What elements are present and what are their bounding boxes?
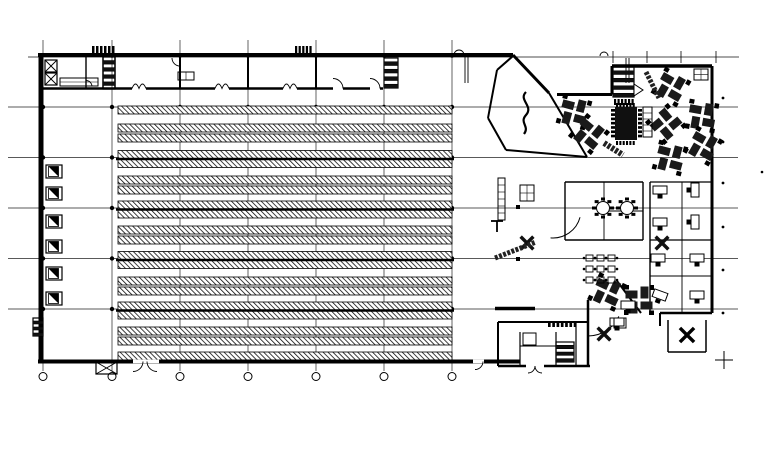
rack-row bbox=[118, 151, 452, 159]
desk bbox=[610, 318, 624, 331]
stair bbox=[103, 57, 115, 89]
stair bbox=[33, 318, 43, 336]
floorplan-window bbox=[0, 0, 774, 453]
angled-table bbox=[495, 242, 536, 258]
chair-row bbox=[638, 109, 642, 137]
chair-row bbox=[92, 46, 114, 53]
rack-row bbox=[118, 311, 452, 319]
desk bbox=[690, 254, 704, 267]
workstation-cluster bbox=[685, 99, 720, 134]
rack-row bbox=[118, 124, 452, 132]
desk bbox=[653, 218, 667, 231]
rack-row bbox=[118, 226, 452, 234]
rack-row bbox=[118, 176, 452, 184]
rack-row bbox=[118, 302, 452, 310]
rack-row bbox=[118, 186, 452, 194]
floor-plan-canvas bbox=[0, 0, 774, 453]
desk bbox=[651, 254, 665, 267]
rack-row bbox=[118, 160, 452, 168]
equipment-box bbox=[45, 60, 57, 72]
rack-row bbox=[118, 210, 452, 218]
desk bbox=[687, 215, 700, 229]
rack-row bbox=[118, 261, 452, 269]
equipment-box bbox=[45, 73, 57, 85]
desk bbox=[651, 289, 668, 306]
workstation-cluster bbox=[651, 67, 692, 108]
desk bbox=[687, 183, 700, 197]
desk bbox=[653, 186, 667, 199]
shelving bbox=[498, 178, 505, 220]
shelving bbox=[694, 69, 708, 80]
rack-row bbox=[118, 252, 452, 260]
survey-markers bbox=[715, 97, 763, 369]
round-table bbox=[592, 198, 614, 219]
chair-row bbox=[616, 141, 635, 145]
cafe-table bbox=[605, 266, 619, 272]
stair bbox=[613, 67, 634, 97]
rack-row bbox=[118, 277, 452, 285]
stair bbox=[384, 58, 398, 88]
rack-row bbox=[118, 337, 452, 345]
angled-table bbox=[646, 72, 659, 98]
rack-row bbox=[118, 352, 452, 360]
rack-rows bbox=[116, 106, 454, 360]
round-table bbox=[616, 198, 638, 219]
break-symbol bbox=[524, 92, 529, 134]
revolving-door-star bbox=[673, 321, 701, 349]
rack-row bbox=[118, 327, 452, 335]
cafe-table bbox=[605, 255, 619, 261]
workstation-cluster bbox=[683, 126, 724, 167]
stair bbox=[556, 342, 574, 362]
shelving bbox=[520, 185, 534, 201]
conference-table bbox=[615, 107, 637, 140]
rack-row bbox=[118, 236, 452, 244]
rack-row bbox=[118, 106, 452, 114]
rack-row bbox=[118, 134, 452, 142]
chair-row bbox=[611, 109, 615, 137]
rack-row bbox=[118, 201, 452, 209]
rack-row bbox=[118, 287, 452, 295]
equipment-box bbox=[96, 362, 117, 374]
door-leaf bbox=[634, 84, 643, 96]
shelving bbox=[523, 333, 536, 345]
workstation-cluster bbox=[645, 103, 687, 145]
x-table bbox=[649, 230, 674, 255]
chair-row bbox=[295, 46, 312, 53]
desk bbox=[690, 291, 704, 304]
workstation-cluster bbox=[652, 140, 689, 177]
